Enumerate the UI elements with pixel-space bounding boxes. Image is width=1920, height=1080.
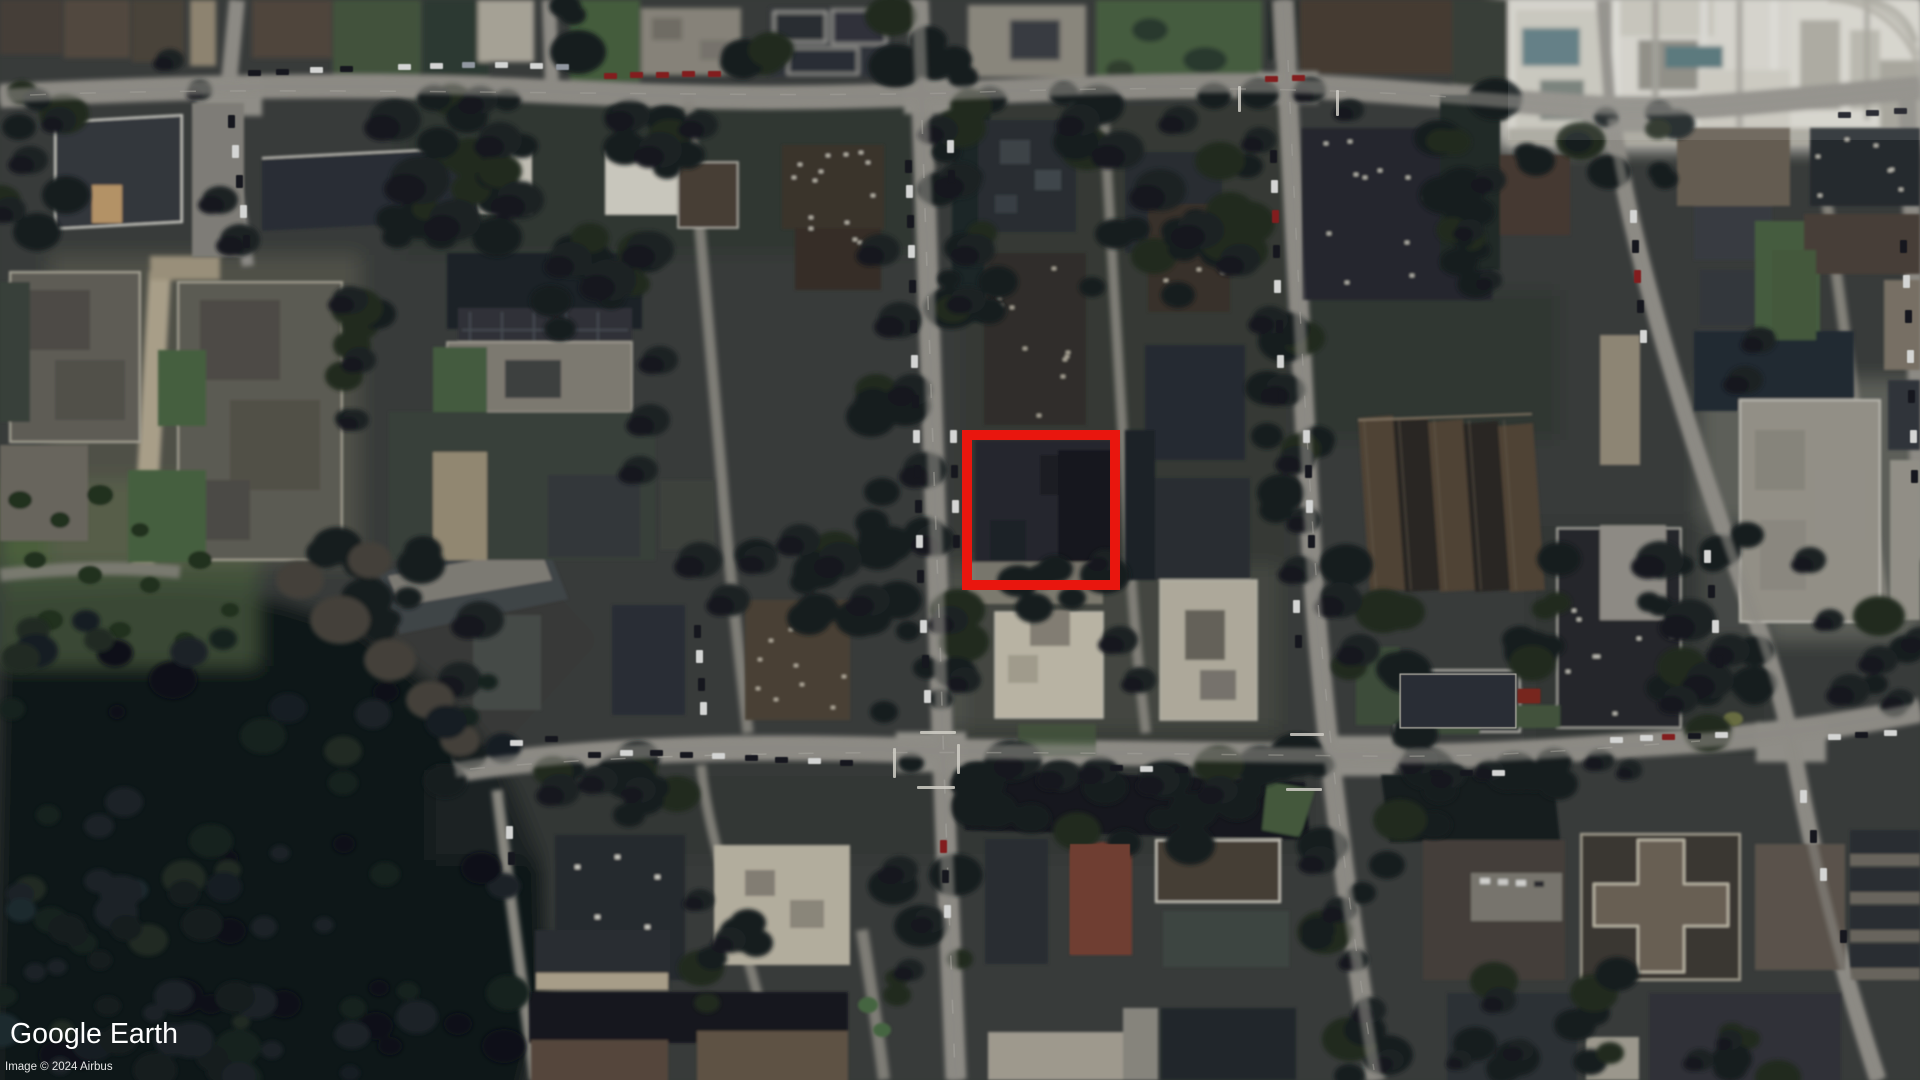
svg-text:Google Earth: Google Earth	[10, 1018, 178, 1050]
svg-text:Image © 2024 Airbus: Image © 2024 Airbus	[5, 1061, 113, 1073]
